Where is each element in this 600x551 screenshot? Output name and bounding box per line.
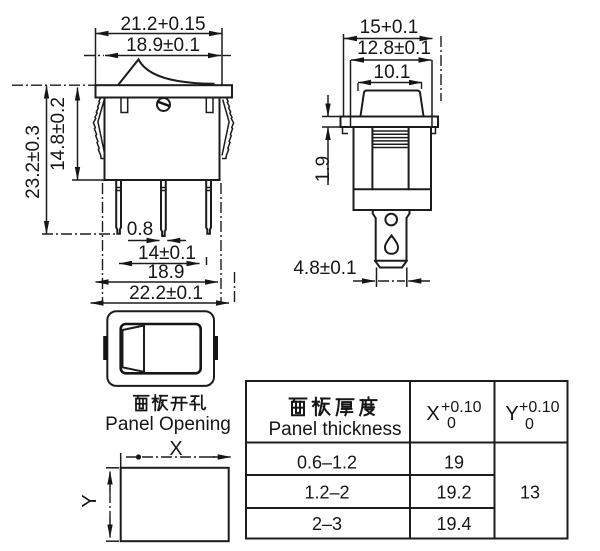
- svg-text:2–3: 2–3: [312, 514, 342, 534]
- svg-text:0: 0: [447, 415, 456, 432]
- svg-text:+0.10: +0.10: [519, 399, 560, 416]
- svg-text:14±0.1: 14±0.1: [138, 243, 196, 264]
- svg-text:18.9: 18.9: [148, 262, 185, 283]
- svg-text:0.6–1.2: 0.6–1.2: [297, 453, 357, 473]
- svg-text:4.8±0.1: 4.8±0.1: [293, 258, 356, 279]
- svg-text:15+0.1: 15+0.1: [360, 17, 419, 38]
- svg-text:1.9: 1.9: [313, 156, 334, 182]
- svg-text:21.2+0.15: 21.2+0.15: [120, 14, 205, 35]
- svg-text:18.9±0.1: 18.9±0.1: [126, 35, 200, 56]
- svg-text:19: 19: [444, 453, 464, 473]
- svg-text:19.2: 19.2: [436, 483, 471, 503]
- svg-text:Panel Opening: Panel Opening: [105, 414, 231, 435]
- svg-text:0: 0: [525, 416, 534, 433]
- svg-text:1.2–2: 1.2–2: [304, 483, 349, 503]
- svg-text:Panel thickness: Panel thickness: [268, 419, 401, 440]
- svg-text:+0.10: +0.10: [441, 399, 482, 416]
- svg-text:X: X: [426, 403, 439, 425]
- svg-text:13: 13: [520, 483, 540, 503]
- svg-text:Y: Y: [505, 403, 518, 425]
- svg-text:10.1: 10.1: [374, 62, 411, 83]
- svg-text:Y: Y: [79, 494, 101, 507]
- svg-text:0.8: 0.8: [127, 219, 153, 240]
- svg-text:14.8±0.2: 14.8±0.2: [48, 97, 69, 171]
- svg-text:23.2±0.3: 23.2±0.3: [23, 125, 44, 199]
- svg-text:19.4: 19.4: [436, 514, 471, 534]
- svg-text:22.2±0.1: 22.2±0.1: [129, 283, 203, 304]
- svg-text:12.8±0.1: 12.8±0.1: [357, 38, 431, 59]
